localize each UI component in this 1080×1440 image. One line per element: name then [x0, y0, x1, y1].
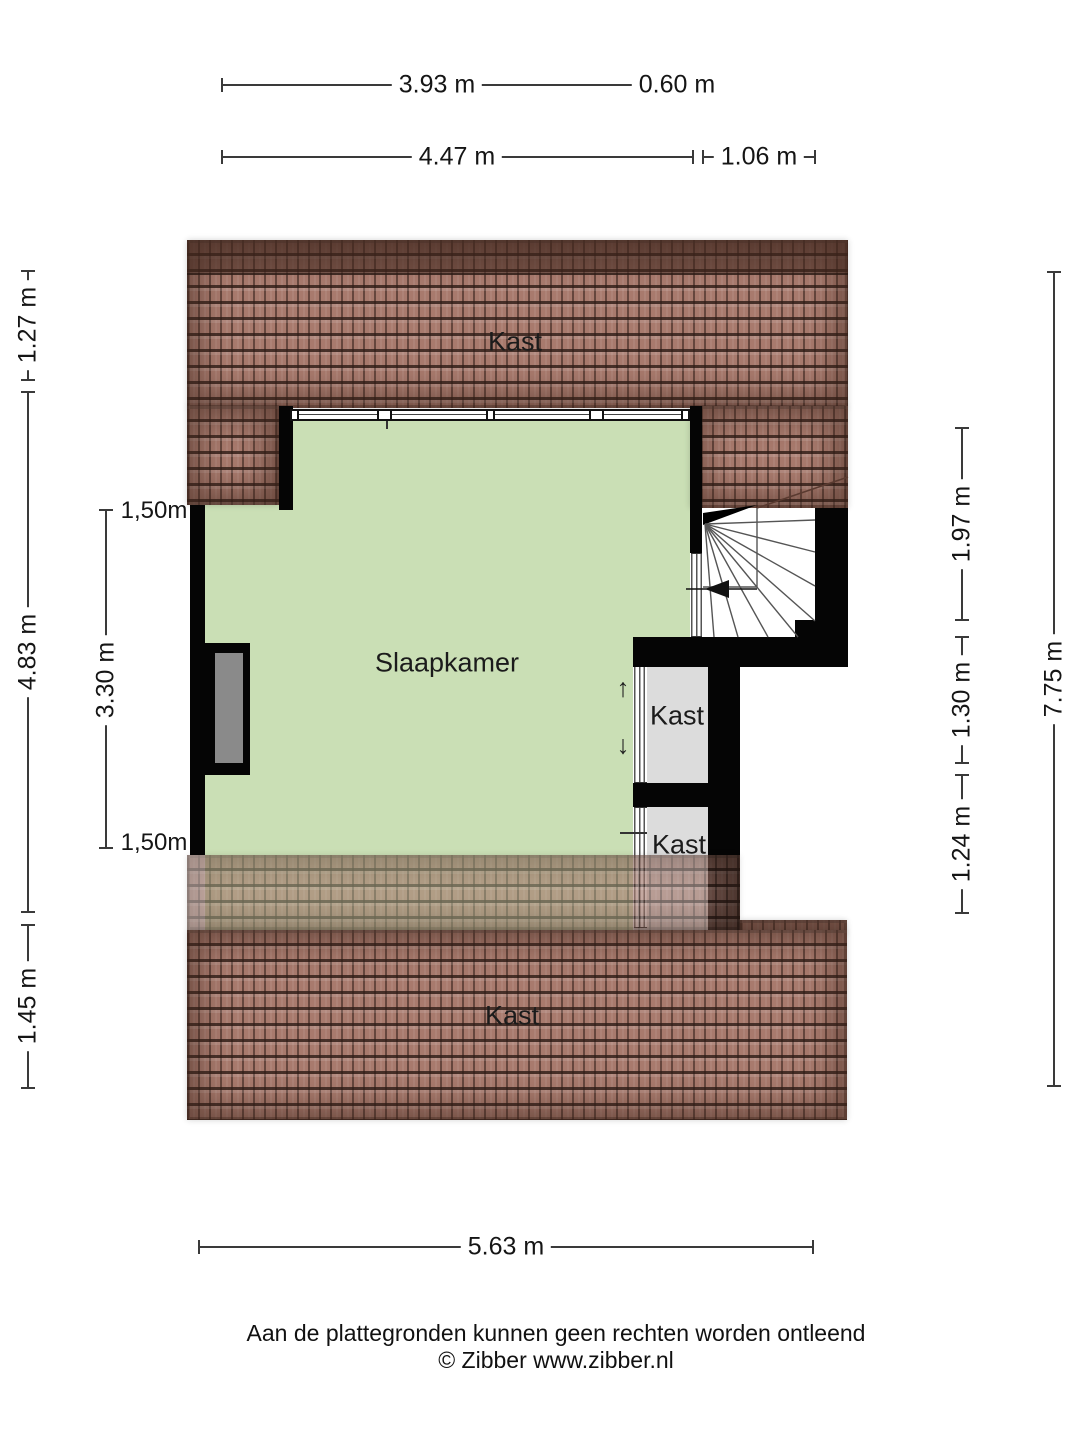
chimney-shaft	[215, 653, 243, 763]
dim-left-outer-top: 1.27 m	[14, 280, 42, 370]
footer-credit: © Zibber www.zibber.nl	[16, 1347, 1080, 1374]
roof-bottom-overlay	[187, 855, 740, 930]
headroom-marker-top: 1,50m	[121, 497, 188, 525]
window-post-1	[290, 409, 299, 421]
wall-between-closets	[633, 783, 708, 807]
footer-disclaimer: Aan de plattegronden kunnen geen rechten…	[16, 1320, 1080, 1347]
dim-right-inner-top: 1.97 m	[948, 479, 976, 569]
roof-top-ridge-band	[187, 240, 848, 275]
window-sill-mark	[386, 421, 388, 429]
room-label-slaapkamer: Slaapkamer	[375, 648, 519, 679]
closet-lower-door-mark	[620, 832, 647, 834]
slide-down-arrow-icon: ↓	[617, 730, 630, 761]
dim-top1-side: 0.60 m	[632, 71, 722, 99]
room-label-closet-lower: Kast	[652, 830, 706, 861]
roof-top	[187, 240, 848, 408]
floorplan-canvas: ↑ ↓ Kast Slaapkamer Kast Kast Kast 3.93 …	[0, 0, 1080, 1440]
closet-upper-sliding-door	[634, 648, 647, 783]
room-label-closet-upper: Kast	[650, 701, 704, 732]
dim-right-inner-mid: 1.30 m	[948, 655, 976, 745]
dim-left-inner-mid: 3.30 m	[92, 635, 120, 725]
dim-top2-side: 1.06 m	[714, 143, 804, 171]
window-post-4	[589, 409, 604, 421]
dim-right-inner-bottom: 1.24 m	[948, 799, 976, 889]
wall-window-left-stub	[279, 406, 293, 510]
stair-direction-arrow	[705, 580, 729, 598]
wall-left	[190, 505, 205, 855]
staircase	[680, 470, 850, 645]
window-post-3	[486, 409, 495, 421]
dim-right-outer-total: 7.75 m	[1040, 634, 1068, 724]
room-label-kast-attic-bottom: Kast	[485, 1001, 539, 1032]
dim-top1-main: 3.93 m	[392, 71, 482, 99]
dim-left-outer-bottom: 1.45 m	[14, 961, 42, 1051]
roof-left-strip	[187, 406, 279, 505]
window-post-5	[681, 409, 690, 421]
dim-top2-main: 4.47 m	[412, 143, 502, 171]
window-post-2	[377, 409, 392, 421]
dim-bottom-width: 5.63 m	[461, 1233, 551, 1261]
headroom-marker-bottom: 1,50m	[121, 829, 188, 857]
dim-left-outer-mid: 4.83 m	[14, 607, 42, 697]
slide-up-arrow-icon: ↑	[617, 673, 630, 704]
room-label-kast-attic-top: Kast	[488, 327, 542, 358]
